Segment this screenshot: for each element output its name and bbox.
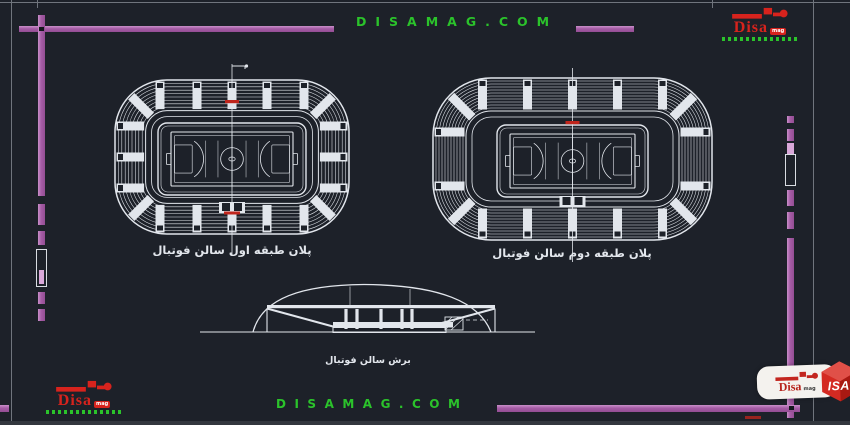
frame-left-dash — [38, 309, 45, 321]
section-drawing — [200, 272, 535, 352]
plan-second-floor-drawing — [425, 58, 720, 263]
plan-first-floor-drawing — [107, 62, 357, 262]
logo-green-text — [46, 410, 122, 414]
plan-first-floor-label: پلان طبقه اول سالن فوتبال — [120, 243, 344, 257]
logo-green-text — [722, 37, 798, 41]
frame-left-box — [36, 249, 47, 287]
watermark-suffix-text: mag — [803, 387, 815, 392]
sheet-edge-left — [11, 0, 12, 425]
frame-left-dash — [38, 292, 45, 304]
bottom-strip — [0, 421, 850, 425]
frame-right-light-seg — [787, 143, 794, 154]
site-banner-bottom: DISAMAG.COM — [276, 397, 468, 411]
cad-sheet: DISAMAG.COM DISAMAG.COM Disa mag Disa ma… — [0, 0, 850, 425]
frame-top-line — [19, 26, 334, 32]
frame-right-dash — [787, 129, 794, 141]
plan-second-floor-label: پلان طبقه دوم سالن فوتبال — [460, 246, 684, 260]
frame-right-dash — [787, 190, 794, 206]
frame-right-dash — [787, 212, 794, 229]
disa-logo-top-right: Disa mag — [716, 7, 804, 41]
site-banner-top: DISAMAG.COM — [356, 14, 558, 29]
isa-cube-icon: ISA — [818, 358, 850, 404]
sheet-tick-left — [37, 0, 38, 8]
frame-left-dash — [38, 231, 45, 245]
watermark-cube-text: ISA — [827, 379, 850, 394]
frame-right-dash — [787, 116, 794, 123]
frame-top-dash — [576, 26, 634, 32]
disa-watermark: Disa mag ISA — [756, 358, 850, 406]
frame-node — [39, 27, 44, 31]
section-label: برش سالن فوتبال — [288, 355, 448, 366]
logo-suffix-text: mag — [770, 28, 786, 35]
frame-bottom-stub — [0, 405, 9, 412]
frame-right-box — [785, 154, 796, 186]
logo-suffix-text: mag — [94, 401, 110, 408]
watermark-brand-text: Disa — [779, 381, 802, 393]
red-mark-bottom — [745, 416, 761, 419]
sheet-tick-right — [712, 0, 713, 8]
frame-node — [789, 406, 794, 410]
disa-logo-bottom-left: Disa mag — [40, 380, 128, 414]
sheet-edge-top — [0, 2, 850, 3]
logo-brand-text: Disa — [734, 21, 768, 35]
logo-brand-text: Disa — [58, 394, 92, 408]
frame-left-line — [38, 15, 45, 196]
frame-bottom-line — [497, 405, 800, 412]
frame-left-dash — [38, 204, 45, 225]
